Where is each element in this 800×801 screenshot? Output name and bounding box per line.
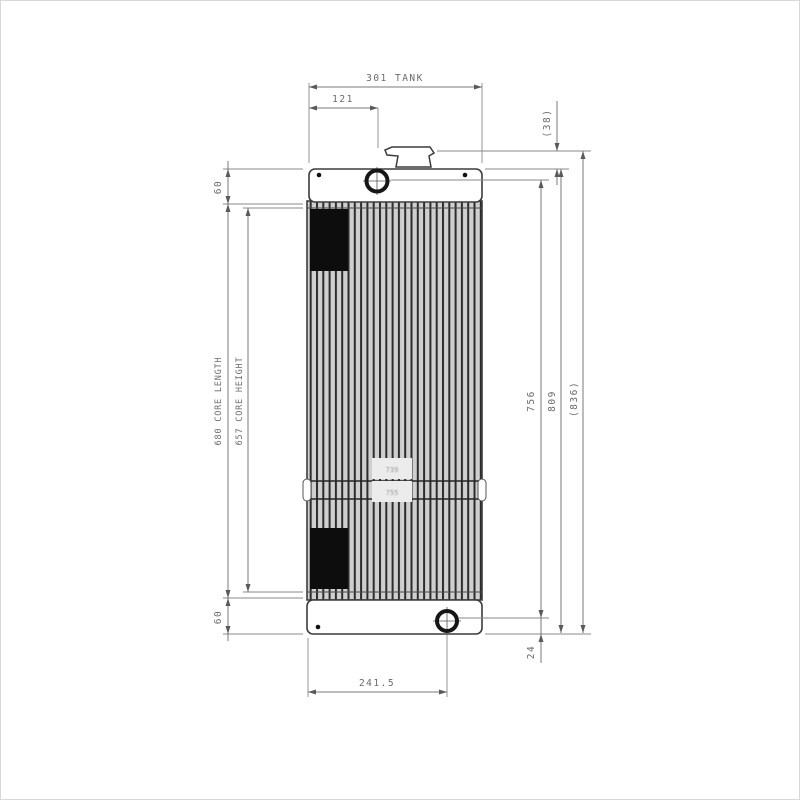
dim-pin-span: 756 bbox=[526, 180, 544, 618]
arrowhead bbox=[370, 106, 378, 111]
seam-end-cap-left bbox=[303, 479, 311, 501]
dim-label-filler-offset: 121 bbox=[332, 94, 354, 105]
arrowhead bbox=[309, 85, 317, 90]
dim-tank-overall-height: 809 bbox=[547, 169, 564, 633]
arrowhead bbox=[246, 584, 251, 592]
arrowhead bbox=[581, 151, 586, 159]
dim-core-height: 657 CORE HEIGHT bbox=[235, 208, 251, 592]
arrowhead bbox=[555, 169, 560, 177]
arrowhead bbox=[226, 590, 231, 598]
arrowhead bbox=[309, 106, 317, 111]
dim-label-cap-height: (38) bbox=[542, 109, 553, 138]
radiator-part: 739 755 bbox=[303, 147, 486, 635]
dim-tank-width: 301 TANK bbox=[309, 73, 482, 90]
dim-bottom-pin-offset-x: 241.5 bbox=[308, 678, 447, 695]
dim-bottom-pin-offset-y: 24 bbox=[526, 618, 544, 663]
arrowhead bbox=[555, 143, 560, 151]
filler-cap bbox=[385, 147, 434, 167]
dim-label-tank-overall: 809 bbox=[547, 390, 558, 412]
rivet-dot-top-right bbox=[463, 173, 468, 178]
center-stamp-text-top: 739 bbox=[386, 466, 399, 474]
dim-overall-with-cap: (836) bbox=[569, 151, 586, 633]
bottom-side-block bbox=[310, 528, 348, 589]
dim-label-tank-width: 301 TANK bbox=[366, 73, 424, 84]
dim-label-bottom-pin-offset-y: 24 bbox=[526, 645, 537, 659]
drawing-svg: 739 755 bbox=[1, 1, 800, 801]
arrowhead bbox=[539, 610, 544, 618]
rivet-dot-bottom-left bbox=[316, 625, 321, 630]
dim-label-bottom-flange: 60 bbox=[213, 610, 224, 624]
top-side-block bbox=[310, 209, 348, 271]
arrowhead bbox=[226, 204, 231, 212]
dim-label-core-length: 680 CORE LENGTH bbox=[214, 357, 224, 446]
arrowhead bbox=[539, 634, 544, 642]
arrowhead bbox=[581, 625, 586, 633]
dim-label-top-flange: 60 bbox=[213, 180, 224, 194]
arrowhead bbox=[474, 85, 482, 90]
arrowhead bbox=[439, 690, 447, 695]
seam-end-cap-right bbox=[478, 479, 486, 501]
center-stamp-text-bottom: 755 bbox=[386, 489, 399, 497]
dim-filler-offset: 121 bbox=[309, 94, 378, 111]
arrowhead bbox=[226, 598, 231, 606]
dim-left-chain: 60 680 CORE LENGTH 60 bbox=[213, 161, 231, 641]
dim-label-pin-span: 756 bbox=[526, 390, 537, 412]
arrowhead bbox=[539, 180, 544, 188]
arrowhead bbox=[226, 169, 231, 177]
top-tank bbox=[309, 169, 482, 202]
dim-label-overall-with-cap: (836) bbox=[569, 381, 580, 417]
arrowhead bbox=[559, 169, 564, 177]
arrowhead bbox=[226, 196, 231, 204]
rivet-dot-top-left bbox=[317, 173, 322, 178]
radiator-technical-drawing: 739 755 bbox=[0, 0, 800, 800]
arrowhead bbox=[246, 208, 251, 216]
arrowhead bbox=[226, 626, 231, 634]
dim-label-core-height: 657 CORE HEIGHT bbox=[235, 357, 245, 446]
arrowhead bbox=[559, 625, 564, 633]
arrowhead bbox=[308, 690, 316, 695]
dim-label-bottom-pin-offset-x: 241.5 bbox=[359, 678, 395, 689]
dim-cap-height: (38) bbox=[542, 101, 560, 185]
